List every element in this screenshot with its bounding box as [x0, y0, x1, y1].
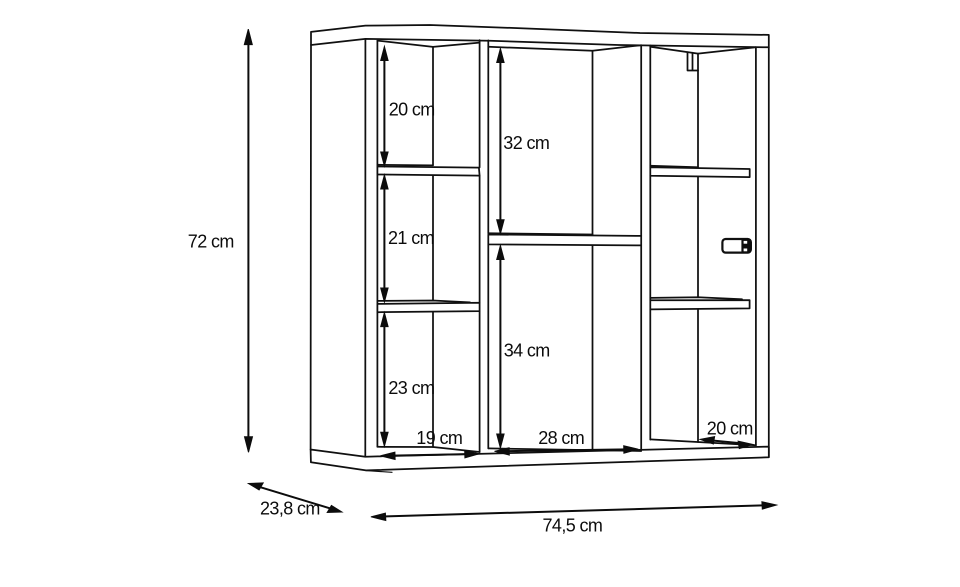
svg-text:74,5 cm: 74,5 cm — [543, 516, 603, 536]
svg-text:23 cm: 23 cm — [388, 378, 434, 398]
svg-text:32 cm: 32 cm — [503, 133, 549, 153]
svg-text:34 cm: 34 cm — [504, 341, 550, 361]
svg-text:28 cm: 28 cm — [538, 428, 584, 448]
svg-text:72 cm: 72 cm — [188, 231, 234, 251]
svg-text:20 cm: 20 cm — [389, 100, 435, 120]
svg-text:23,8 cm: 23,8 cm — [260, 499, 320, 519]
svg-text:20 cm: 20 cm — [707, 419, 753, 439]
svg-text:19 cm: 19 cm — [416, 428, 462, 448]
svg-text:21 cm: 21 cm — [388, 228, 434, 248]
